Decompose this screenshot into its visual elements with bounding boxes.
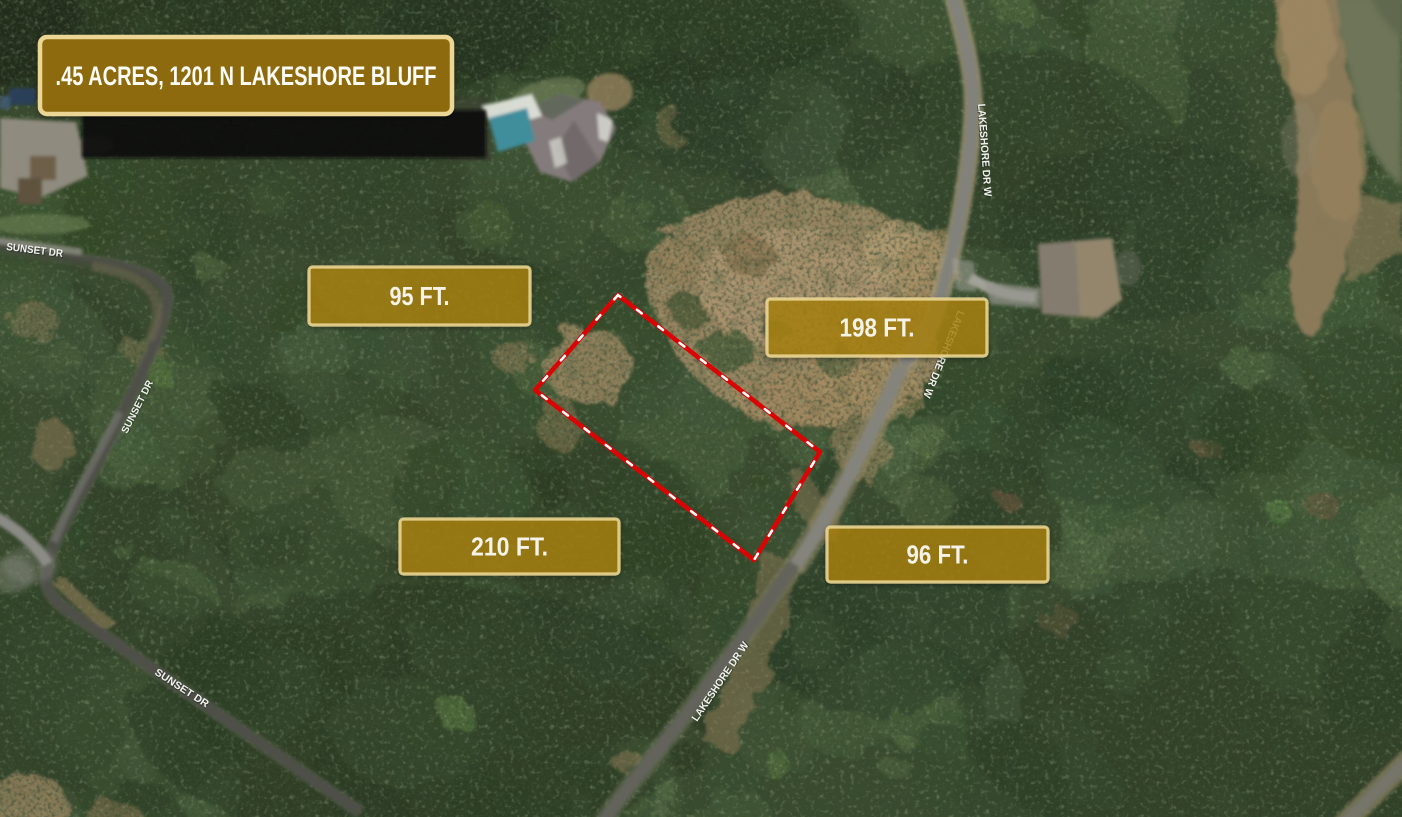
svg-text:210 FT.: 210 FT.	[471, 532, 548, 562]
svg-text:198 FT.: 198 FT.	[840, 313, 915, 343]
svg-text:95 FT.: 95 FT.	[390, 281, 450, 311]
svg-text:.45 ACRES, 1201 N LAKESHORE BL: .45 ACRES, 1201 N LAKESHORE BLUFF	[56, 61, 437, 91]
svg-text:96 FT.: 96 FT.	[907, 540, 969, 570]
